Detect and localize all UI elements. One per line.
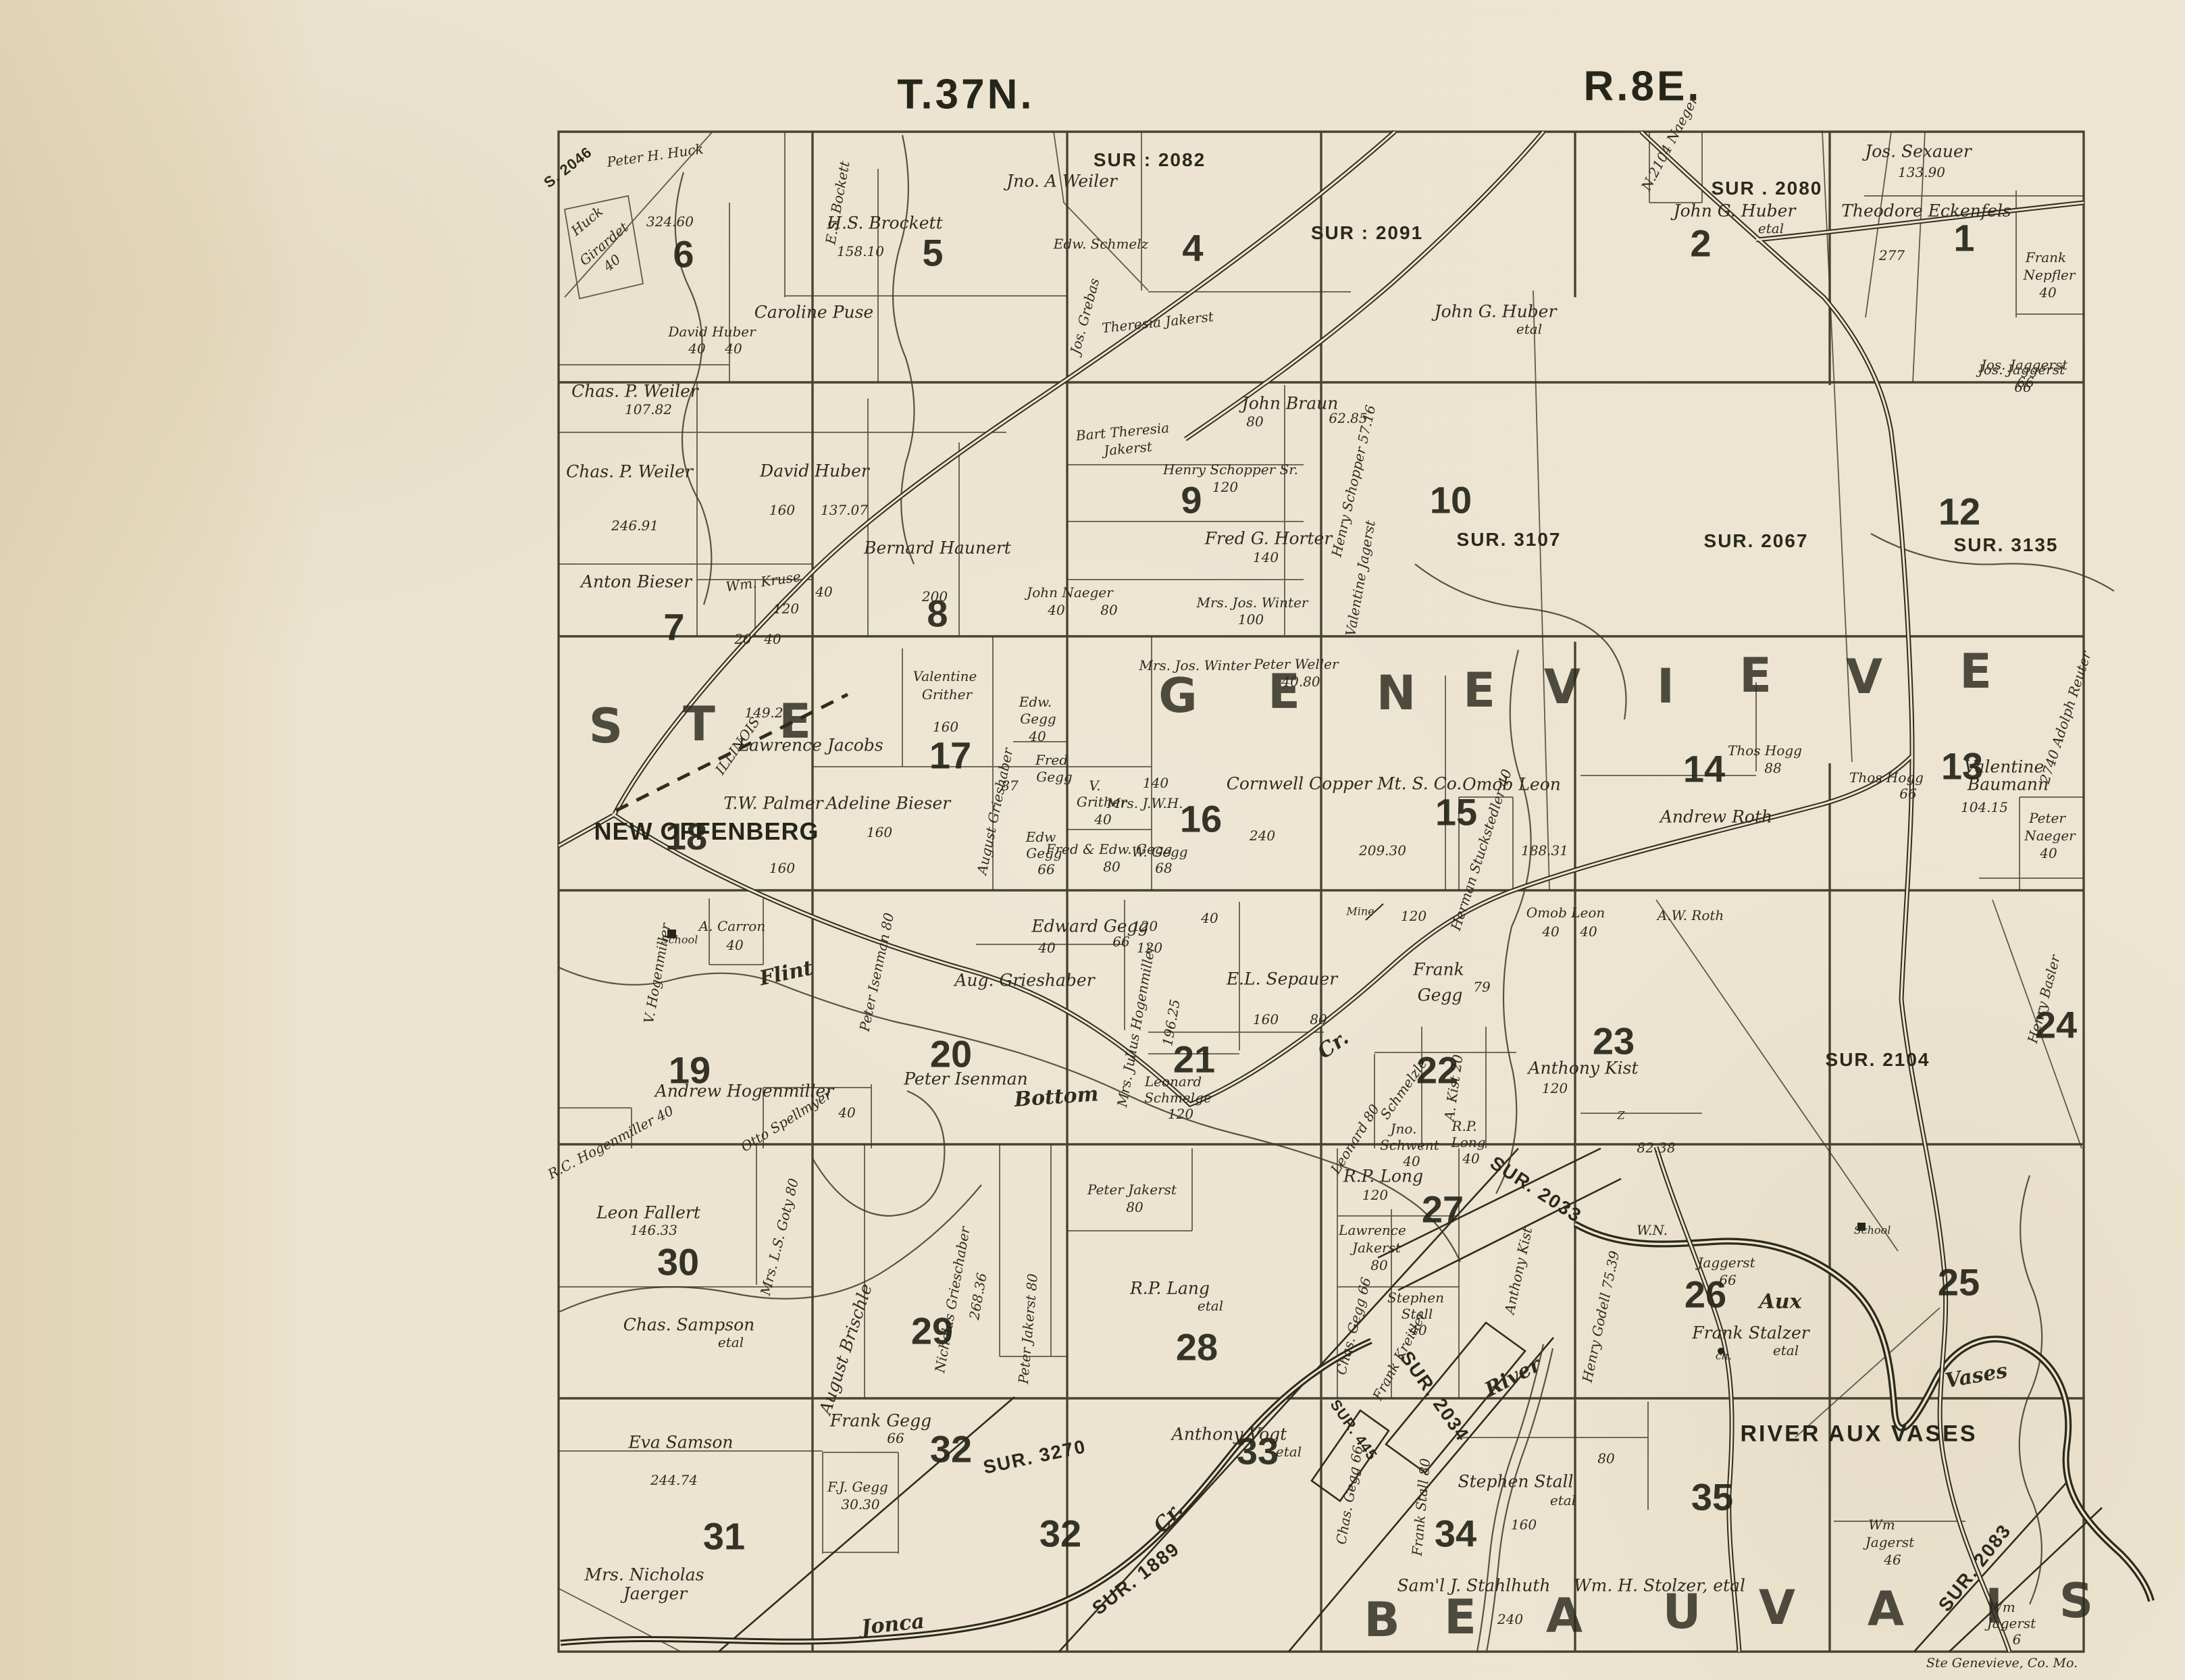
owner-label: John Naeger: [1027, 584, 1113, 601]
owner-label: Adeline Bieser: [826, 794, 950, 813]
owner-label: Jno.: [1391, 1121, 1417, 1137]
region-letter: V: [1846, 649, 1882, 705]
owner-label: Jakerst: [1352, 1240, 1401, 1256]
acreage-label: 40: [1462, 1150, 1479, 1167]
section-number: 9: [1181, 478, 1202, 522]
acreage-label: 140: [1143, 775, 1168, 791]
acreage-label: 160: [867, 824, 892, 840]
section-number: 26: [1685, 1273, 1726, 1317]
acreage-label: 80: [1246, 413, 1263, 430]
region-letter: A: [1868, 1581, 1904, 1637]
owner-label: W.N.: [1637, 1222, 1668, 1238]
acreage-label: 120: [1542, 1080, 1568, 1096]
region-letter: S: [2059, 1573, 2093, 1629]
owner-label: Fred G. Horter: [1205, 529, 1333, 549]
owner-label: Jos. Sexauer: [1865, 142, 1972, 161]
section-number: 10: [1430, 478, 1472, 522]
section-number: 28: [1176, 1325, 1218, 1369]
acreage-label: 120: [1401, 908, 1426, 924]
acreage-label: etal: [1276, 1444, 1302, 1460]
acreage-label: 40: [2040, 845, 2057, 861]
owner-label: Jaggerst: [1697, 1254, 1755, 1271]
region-letter: S: [589, 698, 623, 754]
acreage-label: 324.60: [646, 213, 694, 230]
owner-label: Theodore Eckenfels: [1841, 201, 2011, 221]
section-number: 18: [665, 815, 707, 859]
section-number: 20: [930, 1032, 972, 1076]
owner-label: Frank: [1413, 960, 1464, 979]
owner-label: Fred: [1035, 752, 1068, 768]
region-letter: A: [1546, 1588, 1583, 1644]
survey-label: SUR . 2080: [1712, 178, 1823, 199]
owner-label: V.: [1089, 778, 1100, 794]
owner-label: Jno. A Weiler: [1006, 172, 1117, 191]
acreage-label: 100: [1238, 611, 1264, 628]
acreage-label: 40: [1580, 923, 1597, 940]
owner-label: Grither: [922, 686, 972, 703]
map-credit: Ste Genevieve, Co. Mo.: [1926, 1656, 2078, 1671]
acreage-label: etal: [1516, 321, 1542, 337]
owner-label: Schmelge: [1144, 1090, 1212, 1106]
section-number: 34: [1435, 1512, 1476, 1556]
owner-label: Aug. Grieshaber: [954, 971, 1094, 990]
acreage-label: 160: [769, 502, 795, 518]
acreage-label: 88: [1764, 760, 1781, 776]
owner-label: Peter: [2029, 810, 2065, 826]
map-note: School: [661, 934, 698, 946]
owner-label: Mrs. Jos. Winter: [1197, 594, 1308, 611]
acreage-label: 240: [1250, 828, 1275, 844]
owner-label: Henry Schopper Sr.: [1163, 461, 1298, 478]
owner-label: Andrew Roth: [1660, 807, 1772, 827]
owner-label: Stephen: [1387, 1290, 1444, 1306]
acreage-label: 120: [1168, 1106, 1193, 1122]
acreage-label: 160: [1253, 1011, 1279, 1027]
acreage-label: 146.33: [630, 1222, 677, 1238]
owner-label: Bernard Haunert: [864, 538, 1011, 558]
acreage-label: 120: [1362, 1187, 1388, 1203]
section-number: 13: [1941, 744, 1983, 788]
acreage-label: 68: [1155, 860, 1172, 876]
acreage-label: 20: [734, 631, 751, 647]
acreage-label: 66: [887, 1430, 904, 1446]
section-number: 23: [1593, 1019, 1635, 1063]
region-letter: E: [1959, 644, 1992, 699]
owner-label: David Huber: [668, 324, 755, 340]
section-number: 6: [673, 232, 694, 276]
owner-label: E.L. Sepauer: [1227, 969, 1337, 989]
acreage-label: 240: [1497, 1611, 1523, 1627]
acreage-label: 79: [1473, 979, 1490, 995]
owner-label: John Braun: [1242, 394, 1339, 413]
acreage-label: 40: [1094, 811, 1111, 828]
owner-label: Mrs. Nicholas: [584, 1565, 704, 1585]
owner-label: John G. Huber: [1435, 302, 1557, 322]
survey-label: SUR. 2067: [1704, 530, 1809, 552]
acreage-label: 80: [1370, 1257, 1387, 1273]
section-number: 29: [911, 1309, 953, 1353]
section-number: 15: [1435, 790, 1477, 834]
acreage-label: 66: [1899, 786, 1916, 802]
acreage-label: 120: [773, 601, 799, 617]
section-number: 17: [929, 734, 971, 778]
acreage-label: 6: [2013, 1631, 2022, 1648]
owner-label: Gegg: [1036, 769, 1072, 785]
acreage-label: 160: [933, 719, 958, 735]
owner-label: R.P. Lang: [1130, 1279, 1210, 1298]
title-township: T.37N.: [897, 71, 1034, 119]
section-number: 8: [927, 592, 948, 636]
section-number: 27: [1422, 1188, 1464, 1231]
region-letter: E: [1739, 648, 1772, 703]
owner-label: Lawrence: [1339, 1222, 1406, 1238]
owner-label: Thos Hogg: [1849, 769, 1924, 786]
plat-map-page: T.37N. R.8E. S. 2046Peter H. HuckHuckGir…: [0, 0, 2185, 1680]
owner-label: Edw. Schmelz: [1054, 236, 1148, 252]
section-number: 2: [1690, 222, 1711, 265]
owner-label: David Huber: [760, 461, 869, 481]
map-note: Z: [1617, 1109, 1624, 1122]
owner-label: Fred & Edw. Gegg: [1046, 841, 1173, 857]
acreage-label: 120: [1137, 940, 1162, 956]
acreage-label: 80: [1597, 1450, 1614, 1467]
acreage-label: 140: [1253, 549, 1279, 565]
acreage-label: 40: [725, 340, 742, 357]
region-letter: I: [1985, 1579, 2003, 1634]
acreage-label: 40: [1542, 923, 1559, 940]
owner-label: Gegg: [1418, 986, 1463, 1005]
acreage-label: 30.30: [841, 1496, 879, 1512]
acreage-label: 40: [1201, 910, 1218, 926]
section-number: 14: [1683, 747, 1725, 791]
owner-label: Anton Bieser: [581, 572, 692, 592]
acreage-label: 80: [1103, 859, 1120, 875]
section-number: 21: [1173, 1038, 1215, 1081]
owner-label: Caroline Puse: [754, 303, 873, 322]
acreage-label: etal: [1550, 1492, 1576, 1508]
owner-label: H.S. Brockett: [827, 213, 942, 233]
region-letter: N: [1377, 665, 1416, 721]
owner-label: Wm. H. Stolzer, etal: [1574, 1576, 1745, 1596]
owner-label: Chas. P. Weiler: [571, 382, 698, 401]
region-letter: E: [779, 694, 811, 749]
section-number: 1: [1953, 216, 1974, 260]
acreage-label: 40: [1048, 602, 1064, 618]
owner-label: Valentine: [913, 668, 977, 684]
owner-label: Grither: [1077, 794, 1127, 810]
owner-label: Jaerger: [623, 1584, 687, 1604]
region-letter: E: [1268, 664, 1300, 719]
acreage-label: etal: [1198, 1298, 1223, 1314]
owner-label: Jos. Jaggerst: [1978, 361, 2065, 378]
acreage-label: 66: [1112, 934, 1129, 950]
map-note: ch.: [1716, 1350, 1732, 1363]
owner-label: Nepfler: [2024, 267, 2076, 283]
region-letter: T: [683, 696, 715, 752]
region-letter: U: [1663, 1584, 1701, 1639]
owner-label: Naeger: [2024, 828, 2075, 844]
section-number: 19: [669, 1048, 711, 1092]
acreage-label: 46: [1884, 1552, 1901, 1568]
acreage-label: 133.90: [1898, 164, 1945, 180]
owner-label: Leon Fallert: [596, 1203, 700, 1223]
owner-label: A.W. Roth: [1657, 907, 1724, 923]
acreage-label: 66: [2014, 379, 2031, 395]
owner-label: Long: [1451, 1134, 1485, 1150]
owner-label: Omob Leon: [1526, 905, 1605, 921]
place-label: Aux: [1759, 1290, 1802, 1314]
river-name: RIVER AUX VASES: [1740, 1421, 1977, 1448]
owner-label: Eva Samson: [629, 1433, 734, 1452]
acreage-label: 80: [1100, 602, 1117, 618]
acreage-label: 40: [2039, 284, 2056, 301]
survey-label: SUR : 2082: [1094, 149, 1206, 171]
owner-label: Gegg: [1020, 711, 1056, 727]
map-note: Mine: [1346, 905, 1374, 918]
acreage-label: 209.30: [1359, 842, 1406, 859]
owner-label: Frank: [2026, 249, 2066, 265]
section-number: 30: [657, 1240, 699, 1284]
owner-label: John G. Huber: [1674, 201, 1796, 221]
section-number: 12: [1938, 490, 1980, 534]
owner-label: Chas. Sampson: [623, 1315, 755, 1335]
acreage-label: 40: [838, 1104, 855, 1121]
region-letter: B: [1364, 1592, 1399, 1648]
owner-label: Cornwell Copper Mt. S. Co.: [1227, 774, 1462, 794]
acreage-label: etal: [1773, 1342, 1799, 1358]
owner-label: Frank Gegg: [830, 1411, 931, 1431]
region-letter: G: [1158, 668, 1197, 723]
owner-label: T.W. Palmer: [723, 794, 823, 813]
section-number: 32: [1039, 1512, 1081, 1556]
acreage-label: 40: [1029, 728, 1046, 744]
owner-label: R.P.: [1451, 1118, 1476, 1134]
region-letter: I: [1657, 659, 1674, 714]
owner-label: Edw.: [1019, 694, 1052, 710]
section-number: 5: [922, 231, 943, 275]
section-number: 25: [1938, 1261, 1980, 1304]
owner-label: F.J. Gegg: [827, 1479, 888, 1495]
acreage-label: 104.15: [1961, 799, 2008, 815]
acreage-label: 82.38: [1637, 1140, 1675, 1156]
owner-label: Schwent: [1380, 1137, 1439, 1153]
acreage-label: 107.82: [625, 401, 672, 417]
survey-label: SUR : 2091: [1311, 222, 1423, 244]
region-letter: E: [1463, 663, 1495, 718]
acreage-label: etal: [718, 1334, 744, 1350]
section-number: 24: [2035, 1003, 2077, 1047]
owner-label: A. Carron: [699, 918, 765, 934]
acreage-label: 160: [1511, 1517, 1537, 1533]
acreage-label: 137.07: [821, 502, 868, 518]
acreage-label: 158.10: [837, 243, 884, 259]
owner-label: Frank Stalzer: [1692, 1323, 1809, 1343]
acreage-label: 66: [1037, 861, 1054, 877]
survey-label: SUR. 3107: [1457, 529, 1562, 551]
owner-label: Stephen Stall: [1458, 1472, 1574, 1492]
survey-label: SUR. 2104: [1826, 1049, 1930, 1071]
acreage-label: 40: [726, 937, 743, 953]
acreage-label: 80: [1310, 1011, 1327, 1027]
region-letter: V: [1759, 1580, 1795, 1635]
region-letter: V: [1544, 659, 1580, 715]
acreage-label: 244.74: [650, 1472, 698, 1488]
section-number: 33: [1237, 1429, 1279, 1473]
section-number: 22: [1416, 1048, 1458, 1092]
acreage-label: 246.91: [611, 517, 659, 534]
owner-label: Wm: [1868, 1517, 1895, 1533]
owner-label: Peter Jakerst: [1087, 1181, 1177, 1198]
acreage-label: 80: [1126, 1199, 1143, 1215]
acreage-label: 120: [1212, 479, 1238, 495]
acreage-label: 40: [688, 340, 705, 357]
acreage-label: 40: [1038, 940, 1055, 956]
section-number: 16: [1180, 797, 1222, 841]
owner-label: R.P. Long: [1343, 1167, 1423, 1186]
owner-label: Jagerst: [1866, 1534, 1914, 1550]
owner-label: Thos Hogg: [1728, 742, 1802, 759]
survey-label: SUR. 3135: [1954, 534, 2059, 556]
acreage-label: 40: [815, 584, 832, 600]
acreage-label: 277: [1879, 247, 1905, 263]
acreage-label: 160: [769, 860, 795, 876]
owner-label: Edward Gegg: [1031, 917, 1148, 936]
owner-label: Chas. P. Weiler: [566, 462, 693, 482]
acreage-label: etal: [1758, 220, 1784, 236]
region-letter: E: [1444, 1589, 1476, 1645]
section-number: 7: [663, 605, 684, 649]
section-number: 35: [1691, 1475, 1733, 1519]
acreage-label: 40: [764, 631, 781, 647]
map-note: School: [1854, 1224, 1891, 1237]
section-number: 31: [703, 1514, 745, 1558]
acreage-label: 188.31: [1521, 842, 1568, 859]
section-number: 4: [1182, 226, 1203, 270]
section-number: 32: [930, 1427, 972, 1471]
